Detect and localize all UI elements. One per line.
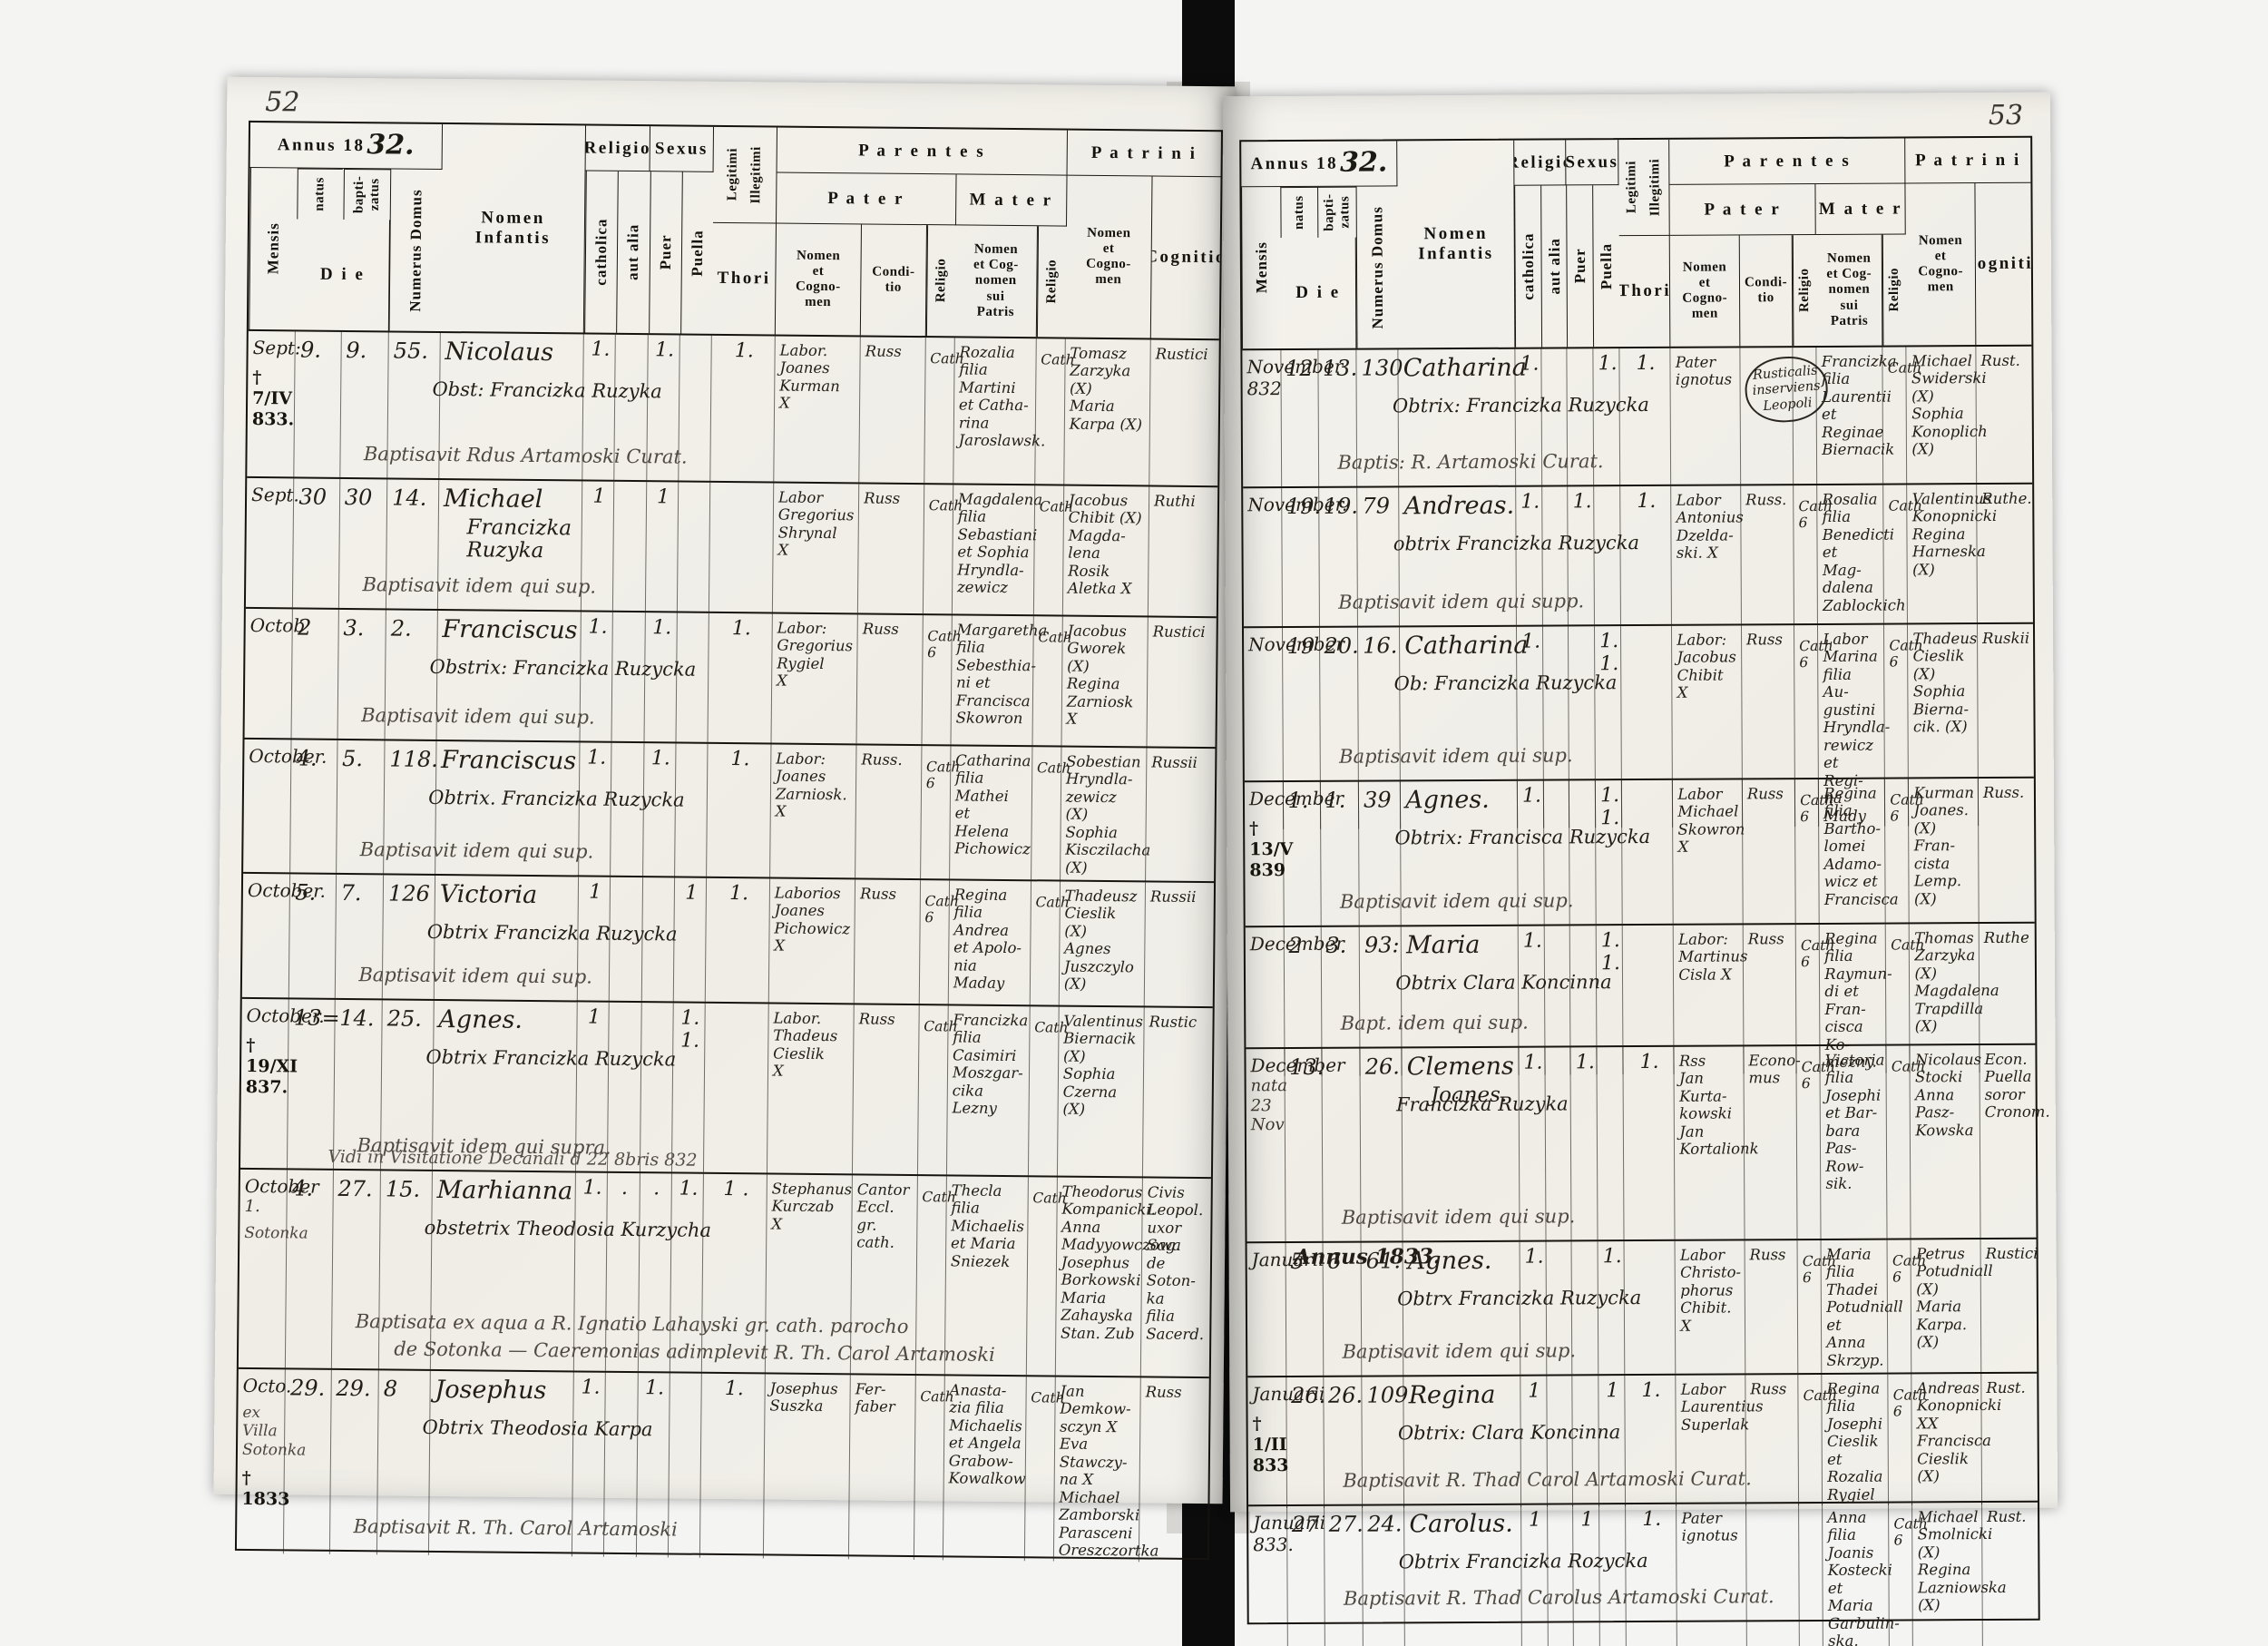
column-header-nomen-infantis: Nomen Infantis	[441, 124, 587, 333]
entry-pater-religio: Cath	[914, 1376, 945, 1560]
column-header-catholica: catholica	[1514, 186, 1541, 348]
column-header-legitimi: Legitimi	[1625, 161, 1641, 213]
table-header: Annus 1832.Nomen InfantisReligioSexusLeg…	[1241, 138, 2031, 351]
entry-mark-puella: 1. 1.	[672, 1003, 706, 1171]
entry-pater-name: Pater ignotus	[1676, 354, 1732, 389]
entry-conditio: Econo- mus	[1744, 1046, 1797, 1239]
group-header-religio: Religio	[1514, 140, 1567, 185]
entry-numerus-domus: 24.	[1363, 1505, 1405, 1646]
entry-mark-thori: 1.	[707, 744, 771, 877]
column-header-mater-religio: Religio	[1882, 234, 1907, 345]
register-entry: November 8321213.130Catharina1.1.1.Pater…	[1242, 347, 2032, 489]
entry-mater-religio: Cath	[1029, 1006, 1060, 1175]
column-header-puer: Puer	[649, 171, 682, 333]
entry-die-natus: 2	[292, 609, 339, 738]
column-header-patrini-nomen: Nomen et Cogno- men	[1066, 176, 1153, 338]
entry-mark-puer	[1569, 780, 1597, 924]
entry-die-baptizatus: 27.	[332, 1171, 382, 1368]
entry-pater: Josephus Suszka	[764, 1374, 851, 1559]
entry-mater-religio: Cath	[1035, 338, 1066, 484]
entry-cognitio: Russii	[1145, 882, 1214, 1006]
entry-cognitio: Rust.	[1981, 1374, 2038, 1505]
entry-death-cross-note: † 7/IV 833.	[252, 367, 292, 430]
column-header-mensis: Mensis	[1241, 187, 1281, 348]
annus-printed: Annus 18	[1250, 153, 1338, 173]
entry-obstetrix-line: Obtrix: Francisca Ruzycka	[1394, 826, 1650, 848]
column-header-catholica: catholica	[584, 171, 618, 332]
entry-obstetrix-line: Obtrix Theodosia Karpa	[422, 1416, 652, 1440]
entry-patrini: Valentinus Biernacik (X) Sophia Czerna (…	[1058, 1007, 1145, 1177]
entry-conditio: Russ	[853, 1004, 919, 1174]
entry-cognitio: Rustici	[1981, 1239, 2038, 1372]
entry-conditio: Russ	[1745, 1240, 1798, 1373]
entry-conditio-text: Econo- mus	[1748, 1052, 1800, 1087]
column-header-natus: natus	[297, 168, 343, 219]
entry-patrini: Jacobus Gworek (X) Regina Zarniosk X	[1061, 617, 1149, 747]
entry-pater: Labor: Gregorius Rygiel X	[771, 613, 858, 743]
entry-baptisavit-line: Baptisavit R. Thad Carol Artamoski Curat…	[1343, 1467, 1752, 1491]
entry-mark-aut-alia	[613, 482, 647, 611]
entry-pater-religio: Cath 6	[920, 880, 950, 1004]
entry-conditio-text: Russ	[1746, 631, 1783, 648]
entry-patrini: Petrus Potudniall (X) Maria Karpa. (X)	[1911, 1239, 1981, 1372]
column-header-die: D i e	[1280, 238, 1356, 348]
entry-obstetrix-line: Francizka Ruzyka	[1396, 1092, 1569, 1115]
column-header-puer: Puer	[1567, 185, 1594, 347]
group-header-mater: M a t e r	[956, 174, 1068, 226]
entry-pater-religio: Cath 6	[921, 746, 951, 878]
column-header-thori: Thori	[1619, 236, 1671, 347]
entry-pater: Pater ignotus	[1671, 348, 1741, 484]
entry-mensis: November 832	[1242, 350, 1281, 486]
entry-patrini: Andreas Konopnicki XX Francisca Cieslik …	[1912, 1374, 1982, 1505]
entry-obstetrix-line: Obtrix Francizka Ruzycka	[427, 921, 678, 945]
register-entry: Januarii5661.Agnes.1.1.Labor Christo- ph…	[1247, 1239, 2038, 1378]
entry-pater-name: Labor: Jacobus Chibit X	[1677, 631, 1735, 701]
entry-mater: Francizka filia Laurentii et Reginae Bie…	[1817, 348, 1884, 484]
entry-pater-name: Labor. Thadeus Cieslik X	[773, 1010, 837, 1081]
entry-cognitio: Russ	[1139, 1377, 1209, 1562]
entry-cognitio: Rust.	[1982, 1503, 2038, 1646]
entry-conditio: Fer- faber	[849, 1375, 916, 1559]
entry-mater: Rosalia filia Benedicti et Mag- dalena Z…	[1817, 485, 1884, 623]
entry-pater: Labor: Joanes Zarniosk. X	[770, 744, 857, 877]
entry-mater: Margaretha filia Sebesthia- ni et Franci…	[951, 615, 1033, 745]
column-header-pater-religio: Religio	[926, 225, 956, 336]
entry-cognitio: Econ. Puella soror Cronom.	[1980, 1045, 2036, 1238]
entry-name: Clemens	[1407, 1053, 1514, 1082]
column-header-die: D i e	[296, 219, 390, 330]
column-header-puella: Puella	[1593, 185, 1620, 347]
entry-conditio-text: Cantor Eccl. gr. cath.	[856, 1181, 909, 1251]
entry-conditio-text: Russ	[863, 620, 899, 637]
entry-baptisavit-line: Baptis: R. Artamoski Curat.	[1337, 450, 1603, 474]
entry-cognitio: Rustici	[1149, 339, 1218, 485]
entry-mark-thori	[1622, 780, 1674, 924]
entry-baptisavit-line: Baptisavit R. Th. Carol Artamoski	[353, 1515, 677, 1540]
entry-mensis: October1.Sotonka	[239, 1170, 288, 1367]
entry-month: Sept:	[253, 337, 301, 359]
entry-mensis: December† 13/V 839	[1245, 782, 1284, 926]
entry-pater: Laborios Joanes Pichowicz X	[769, 878, 855, 1003]
entry-die-natus: 30	[293, 478, 340, 607]
entry-baptisavit-line: Baptisavit idem qui sup.	[1342, 1339, 1576, 1362]
group-header-sexus: Sexus	[1567, 140, 1619, 185]
entry-pater-name: Labor Michael Skowron X	[1677, 786, 1745, 857]
entry-mensis: Januarii	[1247, 1243, 1286, 1376]
entry-pater-name: Labor. Joanes Kurman X	[779, 342, 840, 413]
entry-mater: Anna filia Joanis Kostecki et Maria Garb…	[1823, 1504, 1890, 1646]
entry-mark-puella	[678, 482, 711, 611]
entry-name: Andreas.	[1403, 492, 1514, 521]
entry-mark-puer	[640, 1003, 674, 1171]
column-header-conditio: Condi- tio	[1740, 235, 1794, 346]
entry-name: Franciscus	[442, 615, 577, 644]
entry-pater-religio: Cath	[918, 1005, 949, 1174]
entry-mensis: November.	[1243, 488, 1282, 626]
entry-mark-puella	[1594, 486, 1620, 624]
column-header-thori: Thori	[712, 223, 777, 335]
entry-patrini: Theodorus Kompanicki. Anna Madyyowczowa …	[1056, 1178, 1143, 1377]
register-entry: Sept.303014.MichaelFrancizka Ruzyka11Lab…	[246, 478, 1217, 618]
entry-month: Sept.	[251, 484, 299, 506]
entry-baptisavit-line: Baptisavit idem qui sup.	[360, 838, 594, 862]
entry-patrini: Nicolaus Stocki Anna Pasz- Kowska	[1911, 1045, 1981, 1238]
annus-printed: Annus 18	[278, 135, 366, 156]
entry-baptisavit-line: Baptisavit idem qui sup.	[362, 573, 596, 597]
column-header-mater-nomen: Nomen et Cog- nomen sui Patris	[1816, 235, 1883, 346]
entry-name: Nicolaus	[445, 338, 553, 367]
entry-patrini: Jacobus Chibit (X) Magda- lena Rosik Ale…	[1063, 486, 1150, 616]
entry-mark-puella	[1598, 1047, 1625, 1239]
entry-mater-religio: Cath	[1887, 1045, 1911, 1238]
entry-mater-religio: Cath 6	[1885, 779, 1910, 922]
entry-name: Josephus	[435, 1376, 546, 1405]
entry-die-natus: 26.	[1286, 1377, 1325, 1508]
table-header: Annus 1832.Nomen InfantisReligioSexusLeg…	[249, 122, 1221, 340]
entry-pater-name: Laborios Joanes Pichowicz X	[774, 885, 850, 955]
entry-mater: Regina filia Josephi Cieslik et Rozalia …	[1823, 1375, 1890, 1506]
entry-pater: Labor Gregorius Shrynal X	[773, 484, 860, 613]
entry-conditio	[1746, 1504, 1800, 1646]
entry-pater-religio: Cath 6	[1797, 1046, 1822, 1239]
column-header-annus: Annus 1832.	[250, 122, 443, 170]
entry-name: Michael	[444, 485, 543, 514]
group-header-mater: M a t e r	[1816, 183, 1906, 235]
entry-mensis: October.† 19/XI 837.	[240, 999, 289, 1168]
column-header-pater-religio: Religio	[1793, 235, 1817, 346]
entry-name: Regina	[1409, 1381, 1496, 1410]
column-header-annus: Annus 1832.	[1241, 141, 1397, 187]
entry-obstetrix-line: Obtrix Francizka Ruzycka	[425, 1046, 676, 1071]
entry-mark-thori: 1.	[1626, 1504, 1678, 1646]
entry-die-natus: 12	[1281, 350, 1319, 486]
entry-die-natus: 13.	[1285, 1049, 1323, 1241]
column-header-cognitio: Cognitio	[1975, 183, 2031, 345]
entry-mark-thori: 1.	[711, 336, 776, 482]
column-header-aut-alia: aut alia	[1540, 185, 1568, 347]
entry-patrini: Sobestian Hryndla- zewicz (X) Sophia Kis…	[1061, 748, 1148, 881]
register-entry: Octob23.2.Franciscus1.1.1.Labor: Gregori…	[245, 609, 1217, 749]
entry-die-natus: 1.	[1284, 782, 1322, 926]
column-header-cognitio: Cognitio	[1151, 176, 1221, 338]
entry-pater-name: Labor: Martinus Cisla X	[1678, 930, 1747, 983]
entry-pater: Labor Antonius Dzelda- ski. X	[1672, 485, 1742, 623]
entry-obstetrix-line: Ob: Francizka Ruzycka	[1394, 671, 1618, 694]
entry-conditio-text: Russ.	[861, 750, 902, 768]
entry-obstetrix-line: Obstrix: Francizka Ruzycka	[429, 656, 696, 681]
register-entry: Januarii 833.2727.24.Carolus.111.Pater i…	[1248, 1503, 2038, 1623]
entry-name: Maria	[1406, 931, 1481, 959]
group-header-patrini: P a t r i n i	[1067, 131, 1221, 178]
register-entry: October.5.7.126Victoria111.Laborios Joan…	[242, 874, 1214, 1008]
entry-die-natus: 29.	[284, 1369, 331, 1553]
column-header-numerus-domus: Numerus Domus	[1356, 186, 1399, 348]
entry-die-natus: 5.	[289, 874, 337, 997]
group-header-pater: P a t e r	[777, 173, 956, 226]
entry-conditio: Russ.	[1741, 485, 1794, 623]
entry-mark-puella: 1. 1.	[1596, 780, 1623, 924]
entry-mark-puer: 1	[1573, 1504, 1600, 1646]
entry-die-natus: 9.	[295, 331, 342, 476]
entry-patrini: Kurman Joanes. (X) Fran- cista Lemp. (X)	[1909, 779, 1979, 922]
entry-pater-religio: Cath	[924, 485, 953, 613]
entry-mater-religio: Cath	[1030, 881, 1060, 1004]
entry-mark-thori: 1.	[1623, 1047, 1676, 1239]
entry-pater-name: Labor Gregorius Shrynal X	[777, 489, 854, 560]
entry-conditio-text: Russ	[1749, 1246, 1785, 1263]
group-header-legitimi: LegitimiIllegitimi	[1618, 140, 1670, 236]
entry-mark-catholica: 1	[1521, 1505, 1549, 1646]
register-entry: Januarii† 1/II 83326.26.109Regina111.Lab…	[1247, 1374, 2038, 1507]
entry-pater: Labor. Thadeus Cieslik X	[767, 1004, 855, 1173]
entry-name: Agnes.	[1405, 786, 1490, 814]
entry-mensis: October.	[243, 740, 292, 872]
entry-pater-name: Josephus Suszka	[769, 1380, 837, 1416]
entry-conditio-text: Russ	[1750, 1380, 1786, 1397]
entry-pater-religio	[1799, 1504, 1823, 1646]
entry-conditio: Russ	[1743, 779, 1796, 923]
entry-conditio: Russ	[857, 614, 924, 744]
column-header-puella: Puella	[680, 172, 714, 334]
scanned-register-spread: 52 Annus 1832.Nomen InfantisReligioSexus…	[0, 0, 2268, 1646]
entry-mater: Regina filia Bartho- lomei Adamo- wicz e…	[1819, 779, 1886, 923]
register-entry: Decembernata 23 Nov13.26.ClemensJoanes.1…	[1246, 1045, 2036, 1244]
entry-mater-religio: Cath 6	[1889, 1374, 1913, 1504]
entry-cognitio: Ruthe.	[1977, 485, 2033, 622]
entry-conditio: Russ	[855, 879, 921, 1004]
column-header-mensis: Mensis	[249, 168, 298, 329]
entry-mater: Anasta- zia filia Michaelis et Angela Gr…	[943, 1376, 1027, 1561]
entry-obstetrix-line: Obtrix Clara Koncinna	[1395, 971, 1611, 994]
entry-pater-name: Labor: Gregorius Rygiel X	[777, 620, 853, 691]
entry-mark-puer: 1	[646, 482, 679, 611]
entry-obstetrix-line: obtrix Francizka Ruzycka	[1393, 532, 1639, 554]
entry-mensis: October.	[242, 874, 291, 997]
entry-pater: Labor. Joanes Kurman X	[774, 337, 861, 483]
entry-pater: Rss Jan Kurta- kowski Jan Kortalionk	[1675, 1046, 1745, 1239]
entry-conditio: Russ	[1745, 1375, 1799, 1506]
entry-death-cross-note: † 1833	[241, 1468, 281, 1510]
entry-margin-note: ex Villa Sotonka	[242, 1404, 282, 1460]
entry-month: Octo.	[243, 1375, 292, 1397]
entry-obstetrix-line: Obst: Francizka Ruzyka	[432, 378, 661, 402]
group-header-patrini: P a t r i n i	[1906, 138, 2031, 184]
column-header-patrini-nomen: Nomen et Cogno- men	[1906, 183, 1976, 345]
entry-conditio-text: Russ	[864, 489, 900, 506]
entry-mater-religio: Cath	[1884, 485, 1909, 622]
entry-name: Victoria	[440, 880, 538, 909]
entry-death-cross-note: † 13/V 839	[1249, 818, 1280, 881]
entry-name: Agnes.	[438, 1005, 523, 1034]
entry-conditio: Russ.	[855, 745, 922, 878]
entry-patrini: Tomasz Zarzyka (X) Maria Karpa (X)	[1064, 339, 1151, 485]
entry-cognitio: Rustic	[1143, 1007, 1213, 1177]
entry-pater-religio: Cath 6	[922, 615, 952, 744]
entry-mater: Francizka filia Casimiri Moszgar- cika L…	[947, 1005, 1031, 1175]
entry-conditio-text: Fer- faber	[855, 1380, 894, 1416]
column-header-illegitimi: Illegitimi	[748, 146, 765, 203]
group-header-legitimi: LegitimiIllegitimi	[713, 127, 777, 224]
entry-obstetrix-line: Obtrix Francizka Rozycka	[1399, 1550, 1648, 1573]
entry-pater-name: Labor Christo- phorus Chibit. X	[1680, 1247, 1741, 1335]
register-entry: December† 13/V 8391.1.39Agnes.1.1. 1.Lab…	[1245, 779, 2035, 928]
entry-cognitio: Rust.	[1976, 347, 2032, 483]
group-header-parentes: P a r e n t e s	[777, 128, 1067, 176]
group-header-pater: P a t e r	[1670, 184, 1816, 236]
entry-mater: Regina filia Andrea et Apolo- nia Maday	[949, 880, 1031, 1004]
page-number: 52	[265, 86, 300, 118]
register-entry: Octo.ex Villa Sotonka† 183329.29.8Joseph…	[237, 1369, 1209, 1558]
entry-pater-religio: Cath 6	[1794, 485, 1818, 623]
entry-mark-thori	[709, 483, 774, 612]
group-header-sexus: Sexus	[650, 126, 714, 172]
entry-obstetrix-line: Obtrix: Clara Koncinna	[1398, 1421, 1620, 1444]
entry-mark-aut-alia	[1548, 1504, 1575, 1646]
entry-baptisavit-line: Baptisavit idem qui sup.	[358, 964, 592, 987]
entry-obstetrix-line: Obtrx Francizka Ruzycka	[1397, 1287, 1641, 1309]
annus-handwritten: 32.	[367, 130, 415, 162]
entry-cognitio: Russ.	[1979, 779, 2035, 922]
column-header-aut-alia: aut alia	[616, 171, 650, 333]
entry-pater-religio: Cath	[1798, 1375, 1823, 1505]
entry-pater-name: Stephanus Kurczab X	[771, 1181, 852, 1233]
entry-mater: Rozalia filia Martini et Catha- rina Jar…	[953, 338, 1036, 484]
entry-baptisavit-line: Baptisavit Rdus Artamoski Curat.	[364, 443, 688, 467]
entry-die-natus: 19.	[1282, 488, 1320, 626]
column-header-numerus-domus: Numerus Domus	[389, 169, 442, 331]
entry-conditio-text: Russ	[859, 1010, 895, 1027]
entry-pater-religio: Cath 6	[1798, 1240, 1823, 1373]
entry-cognitio: Civis Leopol. uxor Sag. de Soton- ka fil…	[1141, 1178, 1211, 1377]
column-header-natus: natus	[1280, 187, 1317, 238]
entry-patrini: Jan Demkow- sczyn X Eva Stawczy- na X Mi…	[1054, 1377, 1141, 1563]
table-body: Sept:† 7/IV 833.9.9.55.Nicolaus1.1.1.Lab…	[237, 331, 1219, 1558]
entry-nomen-infantis: Carolus.	[1404, 1505, 1522, 1646]
entry-conditio: Russ	[858, 484, 924, 613]
entry-conditio: Rusticalis inserviens Leopoli	[1740, 348, 1794, 484]
entry-obstetrix-line: Obtrix. Francizka Ruzycka	[428, 787, 685, 811]
entry-visitation-note: Vidi in Visitatione Decanali d 22 8bris …	[327, 1147, 697, 1171]
register-entry: October.† 19/XI 837.13=14.25.Agnes.11. 1…	[240, 999, 1213, 1179]
column-header-conditio: Condi- tio	[861, 224, 927, 336]
entry-baptisavit-line: Baptisavit R. Thad Carolus Artamoski Cur…	[1344, 1585, 1774, 1609]
column-header-legitimi: Legitimi	[726, 148, 742, 201]
entry-conditio-text: Russ	[860, 885, 896, 902]
column-header-baptizatus: bapti-zatus	[343, 169, 391, 220]
entry-mark-puella: 1	[674, 877, 708, 1001]
entry-conditio-text: Russ	[865, 342, 902, 359]
register-entry: October.4.5.118.Franciscus1.1.1.Labor: J…	[243, 740, 1215, 883]
entry-baptisavit-line: Baptisavit idem qui supp.	[1338, 590, 1584, 612]
entry-die-natus: 13=	[288, 999, 335, 1168]
entry-mater-religio: Cath 6	[1889, 1503, 1913, 1646]
entry-baptisavit-line: Bapt. idem qui sup.	[1341, 1012, 1529, 1034]
entry-month-extra: nata 23 Nov	[1251, 1076, 1282, 1135]
entry-mater-religio: Cath	[1034, 485, 1064, 614]
entry-mensis: Januarii 833.	[1248, 1506, 1288, 1646]
entry-mensis: Januarii† 1/II 833	[1247, 1377, 1286, 1509]
entry-pater-name: Pater ignotus	[1681, 1510, 1737, 1545]
entry-margin-note: Sotonka	[244, 1224, 284, 1243]
entry-pater: Labor Christo- phorus Chibit. X	[1676, 1240, 1745, 1373]
entry-baptisavit-line: Baptisavit idem qui sup.	[1340, 889, 1574, 912]
entry-mark-aut-alia	[608, 1003, 641, 1171]
entry-name: Carolus.	[1409, 1510, 1513, 1539]
entry-mater-religio: Cath	[1027, 1177, 1058, 1375]
register-entry: Sept:† 7/IV 833.9.9.55.Nicolaus1.1.1.Lab…	[247, 331, 1219, 487]
entry-pater-name: Labor: Joanes Zarniosk. X	[776, 750, 847, 821]
entry-mark-puella	[1599, 1504, 1627, 1646]
column-header-illegitimi: Illegitimi	[1647, 159, 1664, 216]
entry-cognitio: Ruthi	[1149, 486, 1217, 616]
entry-name-second: Francizka Ruzyka	[466, 516, 579, 563]
table-body: November 8321213.130Catharina1.1.1.Pater…	[1242, 347, 2038, 1623]
entry-mark-thori: 1.	[1620, 486, 1672, 624]
entry-mark-thori: 1.	[706, 878, 770, 1003]
register-entry: December23.93:Maria1.1. 1.Labor: Martinu…	[1246, 924, 2036, 1050]
entry-mark-thori: 1.	[1619, 348, 1671, 485]
entry-conditio: Russ	[859, 337, 925, 483]
entry-patrini: Michael Swiderski (X) Sophia Konoplich (…	[1907, 347, 1977, 483]
register-entry: November1920.16.Catharina1.1. 1.Labor: J…	[1244, 624, 2034, 783]
register-page-right: 53 Annus 1832.Nomen InfantisReligioSexus…	[1223, 93, 2058, 1513]
entry-conditio-text: Russ	[1748, 930, 1784, 947]
entry-name: Franciscus	[441, 746, 576, 775]
entry-baptisavit-line: Baptisavit idem qui sup.	[361, 704, 595, 728]
annus-handwritten: 32.	[1340, 148, 1387, 180]
entry-baptisavit-line: Baptisavit idem qui sup.	[1339, 744, 1573, 767]
page-number: 53	[1989, 100, 2023, 132]
column-header-pater-nomen: Nomen et Cogno- men	[1670, 235, 1740, 346]
entry-cognitio: Russii	[1146, 748, 1215, 881]
entry-name: Catharina	[1403, 354, 1527, 383]
column-header-mater-religio: Religio	[1037, 226, 1067, 337]
entry-mensis: Octob	[245, 609, 294, 738]
entry-mark-thori: 1.	[709, 613, 773, 743]
entry-pater-religio: Cath 6	[1795, 779, 1820, 923]
entry-patrini: Thadeusz Cieslik (X) Agnes Juszczylo (X)	[1060, 882, 1146, 1006]
entry-mater: Victoria filia Josephi et Bar- bara Pas-…	[1821, 1046, 1888, 1239]
entry-mater-religio: Cath 6	[1888, 1239, 1912, 1372]
entry-mark-thori: 1.	[700, 1374, 765, 1558]
entry-pater-name: Labor Antonius Dzelda- ski. X	[1677, 492, 1744, 563]
column-header-nomen-infantis: Nomen Infantis	[1397, 141, 1515, 348]
entry-mater-religio: Cath	[1032, 616, 1062, 745]
entry-die-natus: 4.	[291, 740, 338, 872]
entry-mater: Catharina filia Mathei et Helena Pichowi…	[950, 746, 1032, 879]
entry-mater-religio: Cath	[1883, 347, 1908, 483]
